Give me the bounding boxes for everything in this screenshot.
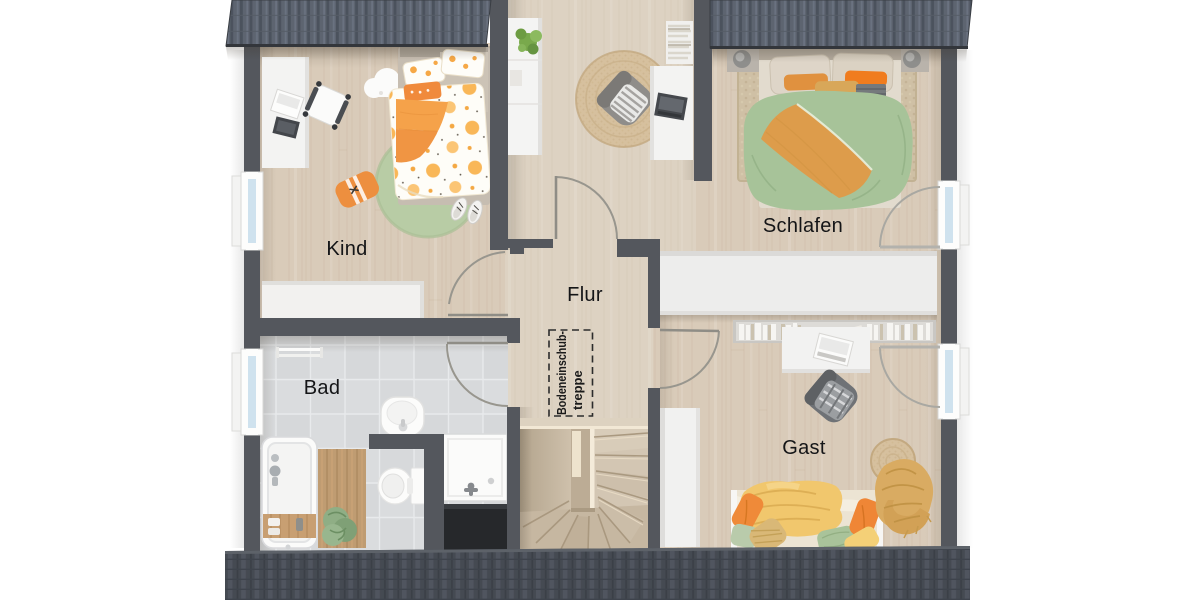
svg-text:Bodeneinschub-: Bodeneinschub- <box>555 331 569 415</box>
svg-text:Gast: Gast <box>782 437 826 459</box>
svg-text:treppe: treppe <box>570 370 585 410</box>
svg-text:Schlafen: Schlafen <box>763 215 843 237</box>
svg-text:Kind: Kind <box>326 238 367 260</box>
svg-text:Flur: Flur <box>567 284 603 306</box>
svg-text:Bad: Bad <box>304 377 341 399</box>
